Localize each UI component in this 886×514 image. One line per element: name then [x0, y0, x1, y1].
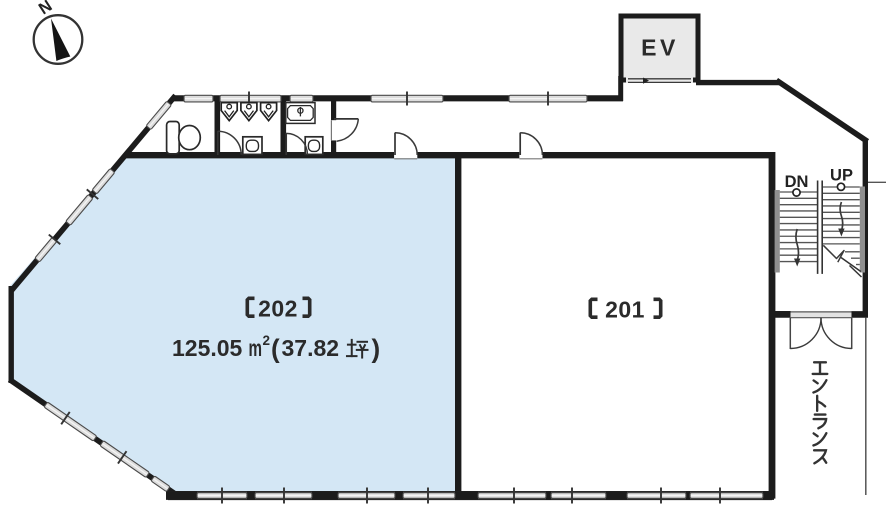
- svg-text:EV: EV: [641, 35, 679, 61]
- svg-text:201: 201: [605, 297, 645, 323]
- svg-text:37.82: 37.82: [282, 335, 340, 361]
- svg-text:m: m: [249, 335, 263, 361]
- svg-text:): ): [372, 334, 381, 364]
- svg-text:125.05: 125.05: [172, 335, 243, 361]
- svg-text:202: 202: [258, 296, 298, 322]
- svg-text:(: (: [271, 334, 280, 364]
- svg-text:UP: UP: [830, 167, 853, 185]
- svg-text:2: 2: [263, 333, 271, 348]
